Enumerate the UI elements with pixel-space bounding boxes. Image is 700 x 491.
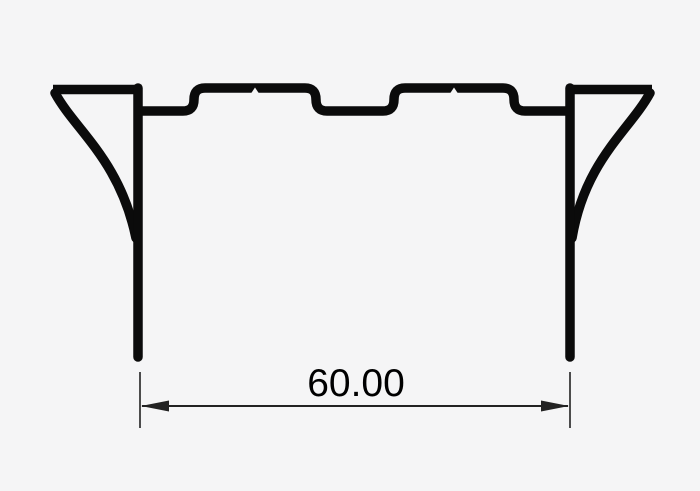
dimension-arrowhead-right xyxy=(541,401,569,412)
dimension-label: 60.00 xyxy=(307,362,405,405)
profile-cross-section-drawing: 60.00 xyxy=(0,0,700,491)
profile-outline xyxy=(53,88,652,358)
top-edge-castellation xyxy=(138,88,570,111)
technical-drawing-page: 60.00 xyxy=(0,0,700,491)
left-wing-curve xyxy=(55,93,136,238)
right-wing-curve xyxy=(572,93,650,238)
width-dimension: 60.00 xyxy=(140,362,570,428)
dimension-arrowhead-left xyxy=(141,401,169,412)
